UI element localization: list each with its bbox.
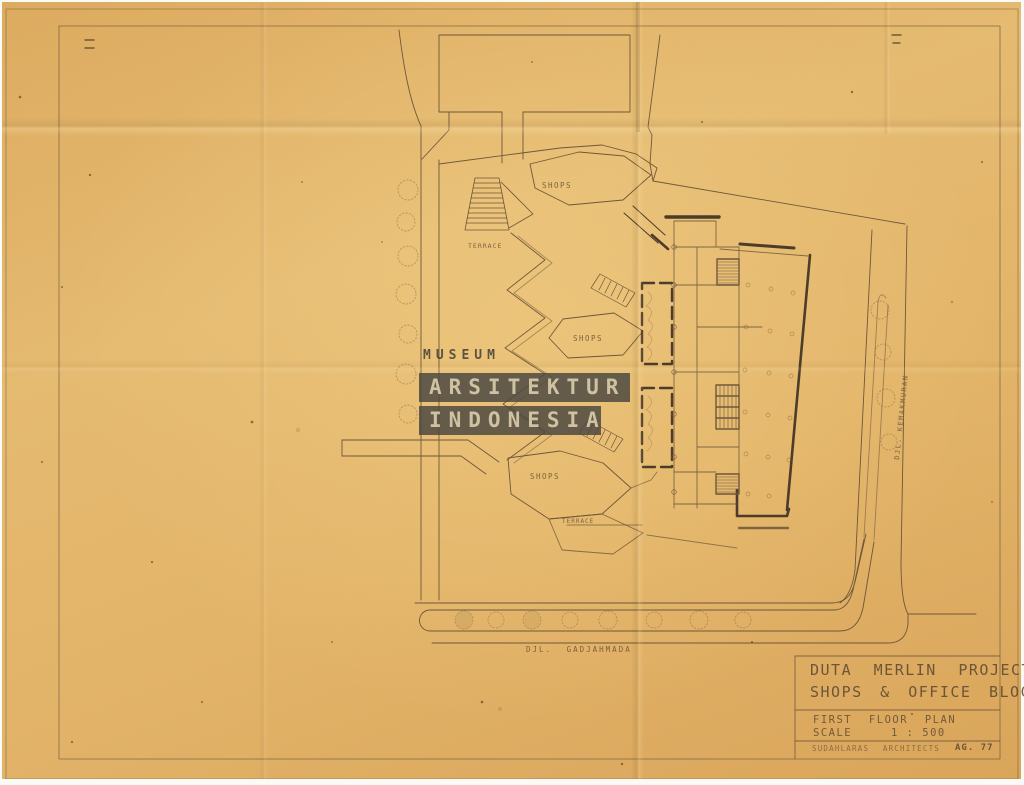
south-road-trees (455, 611, 751, 629)
title-architect-firm: SUDAHLARAS ARCHITECTS (812, 744, 940, 753)
ramp-hatch-upper (591, 274, 635, 307)
watermark-bar-arsitektur: ARSITEKTUR (419, 373, 630, 402)
title-scale-value: 1 : 500 (891, 727, 946, 739)
elevator-core (716, 385, 739, 429)
label-street-south: DJL. GADJAHMADA (526, 645, 632, 654)
column-grid (743, 283, 795, 498)
kiosk-low (508, 451, 631, 519)
west-road (421, 126, 439, 600)
drawing-sheet: SHOPS TERRACE SHOPS SHOPS TERRACE DJL. G… (2, 2, 1021, 779)
label-shops-mid: SHOPS (573, 334, 603, 343)
stair-core-1 (717, 259, 739, 285)
title-scale-label: SCALE (813, 727, 852, 739)
label-terrace-top: TERRACE (468, 242, 502, 250)
kiosk-top (530, 152, 651, 205)
west-road-trees (396, 180, 418, 423)
title-sheet-number: AG. 77 (955, 743, 994, 753)
title-project-name-line2: SHOPS & OFFICE BLOCK (810, 683, 1024, 701)
label-street-east: DJL. KEMAKMURAN (893, 374, 910, 460)
office-block (624, 206, 810, 528)
label-terrace-low: TERRACE (562, 518, 594, 525)
garden-planters (642, 283, 672, 467)
label-shops-top: SHOPS (542, 181, 572, 190)
north-building-outline (399, 30, 630, 163)
watermark-bar-indonesia: INDONESIA (419, 406, 601, 435)
south-road (415, 534, 976, 643)
northeast-boundary (648, 35, 905, 224)
title-drawing-name: FIRST FLOOR PLAN (813, 714, 956, 726)
watermark-museum-text: MUSEUM (423, 348, 500, 363)
stair-core-2 (716, 474, 739, 494)
title-project-name-line1: DUTA MERLIN PROJECT (810, 661, 1024, 679)
office-thin-structure (674, 221, 808, 508)
terrace-stair (465, 178, 533, 230)
west-access-road (342, 440, 499, 474)
garden-scribble (646, 292, 653, 451)
label-shops-low: SHOPS (530, 472, 560, 481)
